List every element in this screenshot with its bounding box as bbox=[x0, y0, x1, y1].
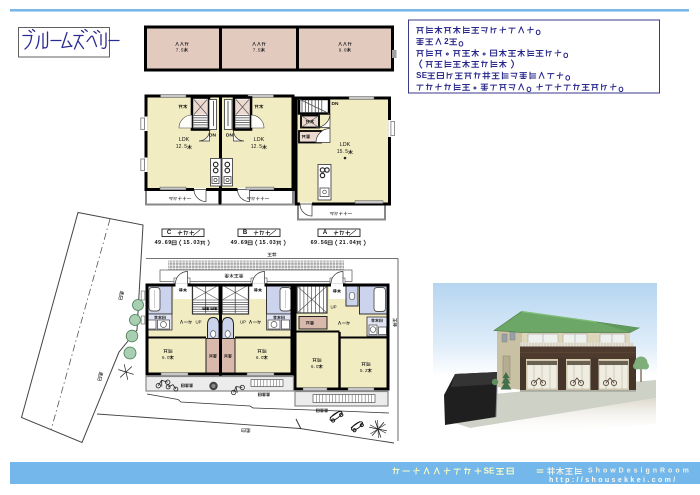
svg-text:UP: UP bbox=[330, 305, 336, 310]
svg-text:9: 9 bbox=[244, 240, 247, 246]
svg-text:4: 4 bbox=[353, 240, 356, 246]
svg-text:DN: DN bbox=[332, 101, 339, 107]
svg-text:9: 9 bbox=[234, 240, 237, 246]
svg-text:http://shousekkei.com/: http://shousekkei.com/ bbox=[549, 477, 678, 484]
svg-text:ShowDesignRoom: ShowDesignRoom bbox=[588, 468, 692, 475]
svg-text:9: 9 bbox=[158, 240, 161, 246]
svg-text:LDK: LDK bbox=[179, 137, 190, 143]
svg-text:DN: DN bbox=[209, 132, 216, 138]
svg-text:5: 5 bbox=[258, 47, 261, 52]
svg-text:SE: SE bbox=[484, 467, 495, 476]
svg-text:DN: DN bbox=[226, 132, 233, 138]
svg-text:LDK: LDK bbox=[254, 137, 265, 143]
svg-text:5: 5 bbox=[184, 144, 187, 150]
svg-text:LDK: LDK bbox=[340, 142, 351, 148]
svg-text:9: 9 bbox=[314, 240, 317, 246]
svg-text:5: 5 bbox=[187, 240, 190, 246]
svg-text:3: 3 bbox=[197, 240, 200, 246]
svg-text:5: 5 bbox=[181, 47, 184, 52]
svg-text:UP: UP bbox=[195, 320, 201, 325]
svg-text:9: 9 bbox=[168, 240, 171, 246]
svg-text:UP: UP bbox=[240, 320, 246, 325]
svg-text:2: 2 bbox=[444, 37, 449, 46]
svg-text:3: 3 bbox=[273, 240, 276, 246]
svg-text:6: 6 bbox=[324, 240, 327, 246]
svg-text:C: C bbox=[167, 230, 172, 236]
svg-text:5: 5 bbox=[345, 149, 348, 155]
svg-text:E: E bbox=[422, 71, 428, 80]
svg-text:5: 5 bbox=[259, 144, 262, 150]
svg-text:5: 5 bbox=[263, 240, 266, 246]
svg-text:1: 1 bbox=[343, 240, 346, 246]
svg-text:B: B bbox=[243, 230, 248, 236]
svg-text:A: A bbox=[323, 230, 328, 236]
svg-text:0: 0 bbox=[344, 47, 347, 52]
